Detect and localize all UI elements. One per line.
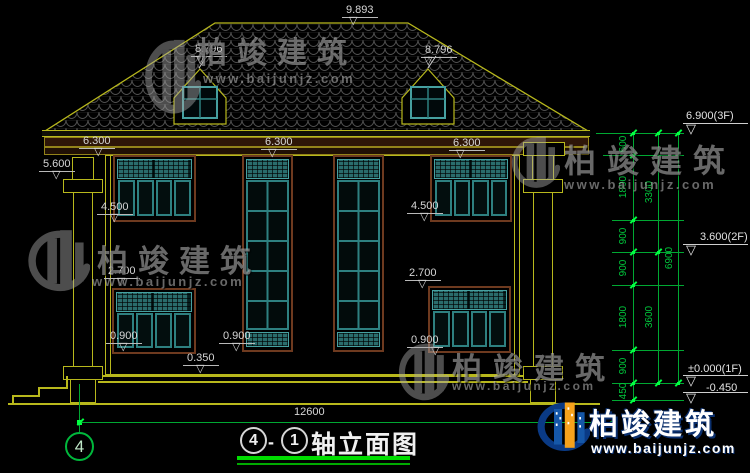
title-axis-end: 1: [281, 427, 308, 454]
dim-total: 6900: [663, 241, 677, 275]
elevation-label-ridge: 9.893: [342, 4, 378, 18]
watermark-logo: [143, 30, 201, 134]
title-underline: [237, 456, 410, 460]
overall-dim-line: [80, 422, 612, 423]
window-bottom-lattice: [337, 332, 380, 347]
floor-level-2f: 3.600(2F): [700, 231, 748, 243]
watermark-site: www.baijunjz.com: [452, 379, 596, 393]
window-grid: [337, 180, 380, 330]
eave-board: [42, 130, 590, 137]
watermark-brand: 柏竣建筑: [564, 136, 736, 182]
window-lattice: [337, 159, 380, 179]
watermark-logo: [26, 222, 90, 308]
floor-level-arrow: ▽: [686, 375, 696, 386]
window-lattice: [434, 159, 508, 179]
floor-level-arrow: ▽: [686, 244, 696, 255]
floor-level-arrow: ▽: [686, 123, 696, 134]
cad-elevation-drawing: 9.893 ▽ 8.796 ▽ 8.796 ▽ 6.300 ▽ 6.300 ▽ …: [0, 0, 750, 473]
window-lattice: [246, 159, 289, 179]
window-panes: [434, 180, 508, 216]
step-tread-1: [38, 387, 68, 389]
window-lattice: [432, 290, 507, 310]
column-left-capital: [63, 179, 103, 193]
overall-width-dim: 12600: [294, 406, 325, 418]
watermark-site: www.baijunjz.com: [203, 71, 355, 86]
window-lattice: [117, 159, 192, 179]
fascia-upper: [44, 137, 589, 147]
axis-bubble-4: 4: [65, 432, 94, 461]
level-arrow: ▽: [196, 364, 204, 374]
dim-segment: 1800: [617, 300, 631, 334]
level-arrow: ▽: [349, 16, 357, 26]
elevation-label-eave-center: 6.300: [261, 136, 297, 150]
brand-logo-color: [536, 396, 590, 464]
step-tread-2: [12, 395, 40, 397]
level-arrow: ▽: [232, 342, 240, 352]
dim-segment: 900: [617, 251, 631, 285]
title-dash: -: [268, 432, 274, 453]
level-arrow: ▽: [420, 212, 428, 222]
dim-segment: 900: [617, 219, 631, 253]
brand-name: 柏竣建筑: [589, 401, 717, 443]
level-arrow: ▽: [424, 56, 432, 66]
column-left-pedestal: [70, 379, 96, 403]
level-arrow: ▽: [119, 342, 127, 352]
title-underline-thin: [237, 463, 410, 465]
elevation-label-eave-right: 6.300: [449, 137, 485, 151]
level-arrow: ▽: [456, 149, 464, 159]
ground-line: [8, 403, 600, 405]
level-arrow: ▽: [268, 148, 276, 158]
brand-site: www.baijunjz.com: [591, 440, 736, 456]
watermark-logo: [510, 130, 560, 202]
watermark-logo: [397, 336, 449, 416]
window-tall-right: [333, 155, 384, 352]
watermark-site: www.baijunjz.com: [92, 274, 244, 289]
level-arrow: ▽: [94, 147, 102, 157]
watermark-brand: 柏竣建筑: [197, 28, 357, 72]
fascia-lower: [44, 147, 589, 155]
window-lattice: [116, 292, 192, 312]
dim-boundary: [612, 285, 684, 286]
dim-subtotal: 3600: [643, 300, 657, 334]
column-left-base: [63, 366, 103, 380]
level-arrow: ▽: [418, 279, 426, 289]
floor-level-1f: ±0.000(1F): [688, 363, 742, 375]
title-axis-start: 4: [240, 427, 267, 454]
watermark-site: www.baijunjz.com: [564, 177, 716, 192]
column-right-shaft: [533, 192, 553, 367]
level-arrow: ▽: [110, 213, 118, 223]
level-arrow: ▽: [52, 170, 60, 180]
dim-boundary: [596, 133, 684, 134]
column-left-neck: [72, 157, 94, 180]
